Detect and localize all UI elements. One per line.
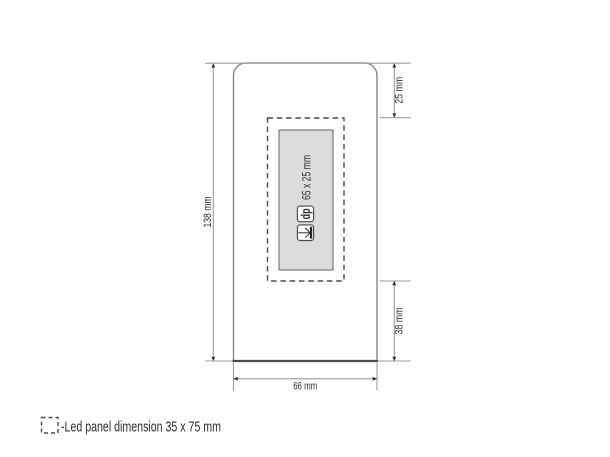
- svg-text:dp: dp: [298, 208, 313, 219]
- svg-text:66 mm: 66 mm: [293, 381, 317, 393]
- svg-text:65 x 25 mm: 65 x 25 mm: [302, 155, 314, 200]
- svg-text:25 mm: 25 mm: [394, 77, 406, 104]
- svg-text:138 mm: 138 mm: [202, 197, 214, 228]
- svg-text:38 mm: 38 mm: [394, 308, 406, 335]
- svg-text:-Led panel dimension 35 x 75 m: -Led panel dimension 35 x 75 mm: [61, 420, 221, 436]
